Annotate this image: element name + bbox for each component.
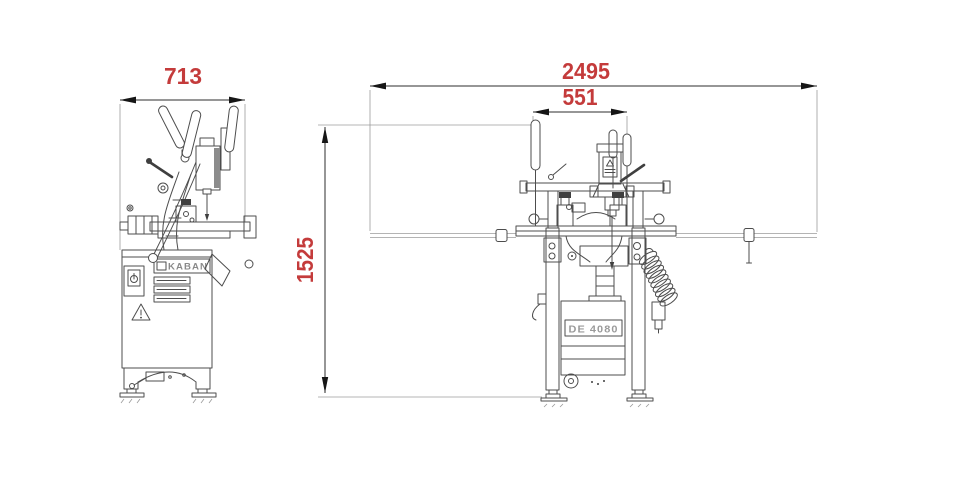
switch-panel [124,266,144,296]
side-width-value: 713 [164,63,202,89]
front-cabinet: DE 4080 [561,301,625,388]
right-column [632,228,645,390]
front-view: 2495 551 1525 [292,58,817,407]
under-table-mechanism [566,236,628,301]
side-head-unit [120,104,256,262]
side-cabinet: KABAN [120,250,253,403]
handle-lever [157,104,186,149]
front-table [516,192,676,236]
air-filter-unit [652,302,665,333]
adjustable-feet [120,389,216,403]
brand-logo-icon [157,262,166,270]
side-machine-drawing: KABAN [120,104,256,403]
handle-lever [224,106,239,153]
support-rod-right [676,229,817,264]
arrowhead-icon [322,377,328,393]
dimension-height: 1525 [292,125,542,397]
support-rod-left [370,230,516,242]
locking-lever [621,165,644,181]
locking-lever [151,163,172,177]
work-table [150,222,250,231]
handle-lever [531,120,540,170]
clamp-knob [654,214,664,224]
arrowhead-icon [229,97,245,104]
overall-width-value: 2495 [562,58,610,84]
drawing-canvas: 713 [0,0,960,480]
warning-triangle-icon [132,304,150,320]
height-value: 1525 [292,237,318,283]
arrowhead-icon [322,127,328,143]
brand-plate-label: KABAN [168,262,208,272]
arrowhead-icon [533,109,549,116]
brand-plate: KABAN [154,259,210,273]
left-column [546,228,559,390]
handle-lever [181,110,201,159]
arrowhead-icon [611,109,627,116]
handle-lever [623,134,631,166]
rod-stop [744,229,754,242]
machine-dimension-drawing: 713 [0,0,960,480]
model-plate-label: DE 4080 [569,325,619,336]
info-plates [154,277,190,302]
arrowhead-icon [120,97,136,104]
warning-triangle-icon [607,160,614,166]
arrowhead-icon [801,83,817,90]
coiled-hose-icon [637,248,679,333]
adjustable-feet [541,390,653,407]
side-view: 713 [120,63,256,403]
rod-stop [496,230,507,242]
inner-width-value: 551 [563,84,598,110]
lever-knob [149,254,158,263]
clamp-knob [529,214,539,224]
front-machine-drawing: DE 4080 [370,120,817,407]
caster-wheel-icon [564,374,578,388]
model-plate: DE 4080 [565,320,622,336]
arrowhead-icon [370,83,386,90]
